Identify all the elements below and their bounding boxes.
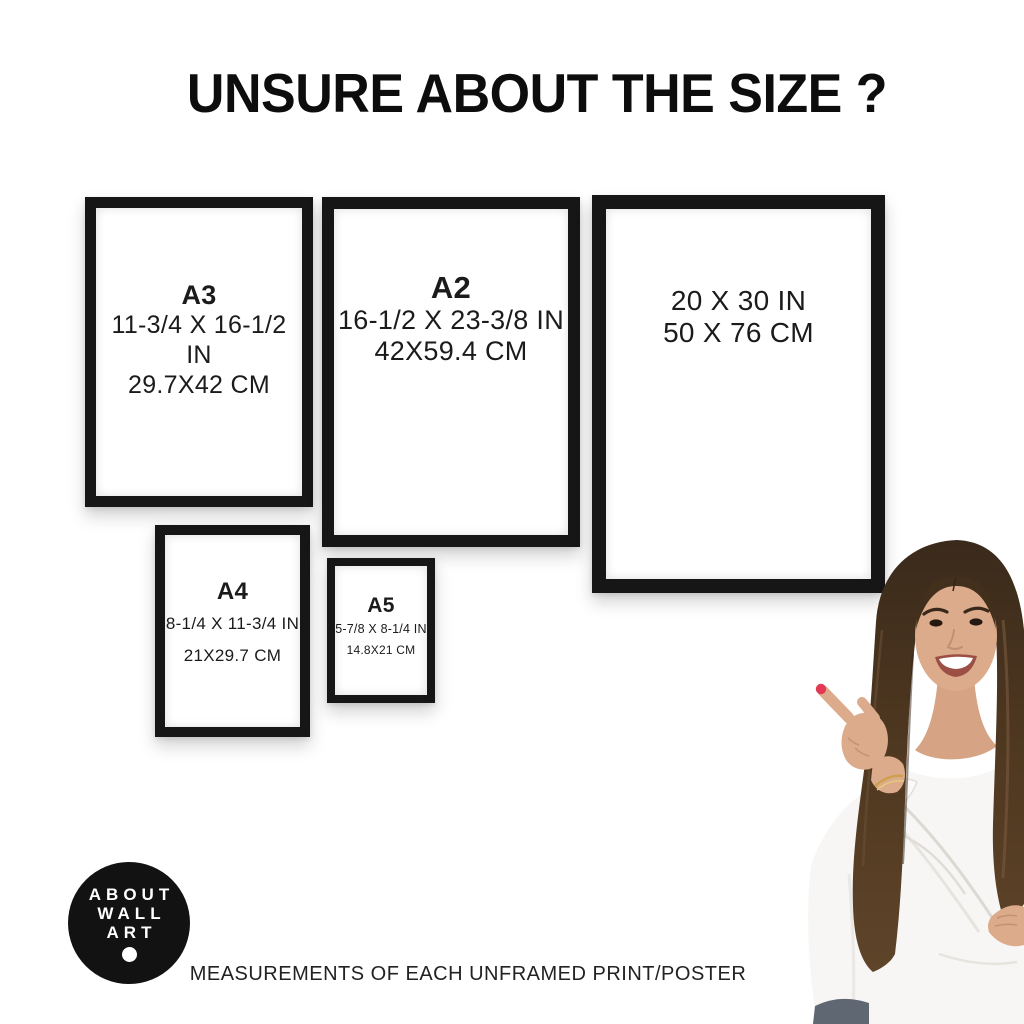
brand-logo-line3: ART bbox=[102, 923, 157, 942]
brand-logo-line1: ABOUT bbox=[84, 885, 174, 904]
frame-20x30-inches: 20 X 30 IN bbox=[671, 285, 806, 317]
frame-a4-cm: 21X29.7 CM bbox=[184, 646, 282, 666]
frame-a5-inches: 5-7/8 X 8-1/4 IN bbox=[335, 622, 426, 636]
frame-20x30-print-area: 20 X 30 IN 50 X 76 CM bbox=[606, 209, 871, 579]
frame-a5: A5 5-7/8 X 8-1/4 IN 14.8X21 CM bbox=[327, 558, 435, 703]
woman-blouse bbox=[808, 764, 1024, 1024]
frame-a2-inches: 16-1/2 X 23-3/8 IN bbox=[338, 305, 564, 336]
size-guide-infographic: UNSURE ABOUT THE SIZE ? A3 11-3/4 X 16-1… bbox=[0, 0, 1024, 1024]
red-nail bbox=[816, 684, 826, 694]
frame-a3-cm: 29.7X42 CM bbox=[128, 370, 270, 400]
frame-a4: A4 8-1/4 X 11-3/4 IN 21X29.7 CM bbox=[155, 525, 310, 737]
brand-logo-line2: WALL bbox=[92, 904, 165, 923]
frame-a3: A3 11-3/4 X 16-1/2 IN 29.7X42 CM bbox=[85, 197, 313, 507]
frame-a3-print-area: A3 11-3/4 X 16-1/2 IN 29.7X42 CM bbox=[96, 208, 302, 496]
brand-logo-dot-icon bbox=[122, 947, 137, 962]
frame-a3-size-label: A3 bbox=[181, 280, 216, 310]
frame-a5-size-label: A5 bbox=[367, 594, 394, 617]
frame-a3-inches: 11-3/4 X 16-1/2 IN bbox=[96, 310, 302, 370]
woman-pointing-photo bbox=[789, 534, 1024, 1024]
frame-a4-inches: 8-1/4 X 11-3/4 IN bbox=[166, 614, 299, 634]
frame-a4-print-area: A4 8-1/4 X 11-3/4 IN 21X29.7 CM bbox=[165, 535, 300, 727]
frame-a2: A2 16-1/2 X 23-3/8 IN 42X59.4 CM bbox=[322, 197, 580, 547]
frame-a2-size-label: A2 bbox=[431, 271, 471, 305]
frame-a5-print-area: A5 5-7/8 X 8-1/4 IN 14.8X21 CM bbox=[335, 566, 427, 695]
frame-a4-size-label: A4 bbox=[217, 579, 248, 605]
woman-face bbox=[915, 576, 997, 691]
frame-a2-print-area: A2 16-1/2 X 23-3/8 IN 42X59.4 CM bbox=[334, 209, 568, 535]
frame-a5-cm: 14.8X21 CM bbox=[347, 643, 416, 657]
frame-20x30-cm: 50 X 76 CM bbox=[663, 317, 814, 349]
frame-a2-cm: 42X59.4 CM bbox=[374, 336, 527, 367]
page-title: UNSURE ABOUT THE SIZE ? bbox=[100, 62, 974, 126]
